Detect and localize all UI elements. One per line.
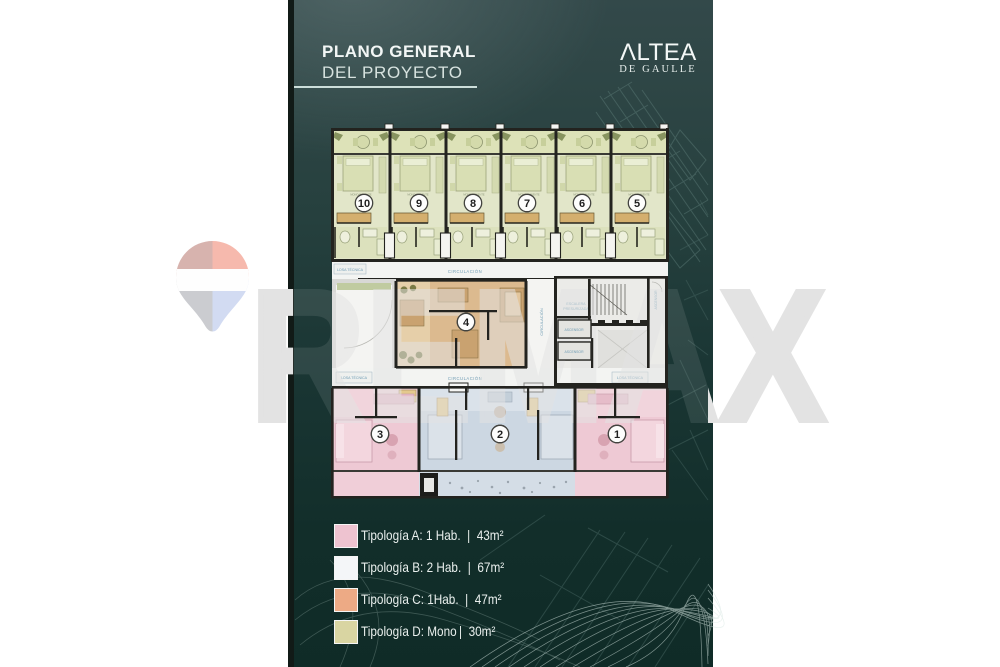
svg-text:1: 1	[614, 429, 620, 441]
svg-text:ASCENSOR: ASCENSOR	[564, 350, 584, 354]
svg-text:3: 3	[377, 429, 383, 441]
svg-text:2: 2	[497, 429, 503, 441]
svg-text:ASCENSOR: ASCENSOR	[564, 328, 584, 332]
svg-text:4: 4	[463, 317, 470, 329]
